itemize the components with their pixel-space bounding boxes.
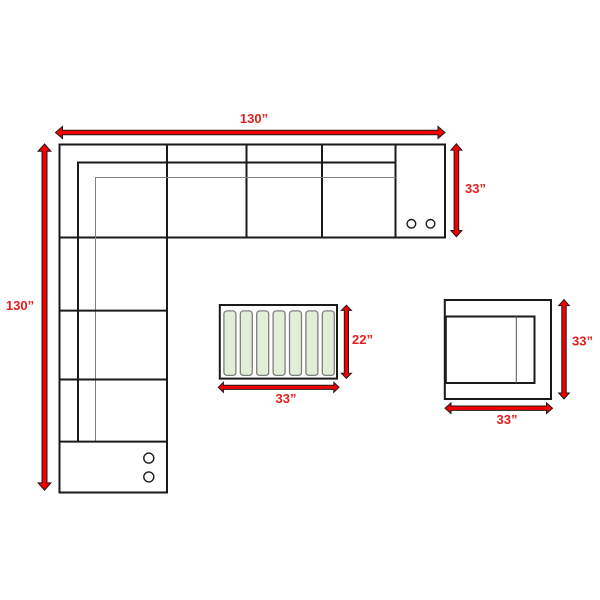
svg-text:33”: 33”: [276, 391, 297, 406]
svg-text:130”: 130”: [240, 111, 268, 126]
svg-text:33”: 33”: [465, 181, 486, 196]
svg-text:33”: 33”: [572, 334, 593, 349]
svg-text:22”: 22”: [352, 332, 373, 347]
svg-text:33”: 33”: [497, 412, 518, 427]
svg-text:130”: 130”: [6, 298, 34, 313]
